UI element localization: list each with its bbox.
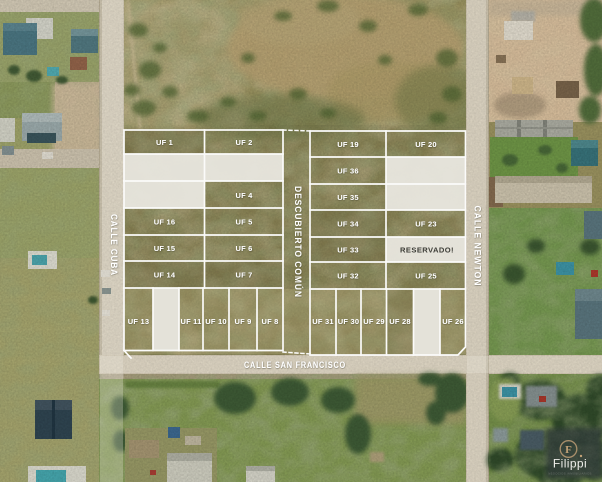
svg-text:UF 11: UF 11 xyxy=(180,317,201,326)
svg-text:UF 7: UF 7 xyxy=(235,271,252,280)
svg-text:UF 4: UF 4 xyxy=(235,191,253,200)
svg-text:UF 5: UF 5 xyxy=(235,218,252,227)
svg-text:F: F xyxy=(565,444,572,456)
svg-text:UF 16: UF 16 xyxy=(154,218,175,227)
svg-text:UF 8: UF 8 xyxy=(261,317,278,326)
svg-text:UF 34: UF 34 xyxy=(337,220,359,229)
svg-text:UF 1: UF 1 xyxy=(156,138,173,147)
svg-text:UF 31: UF 31 xyxy=(312,317,333,326)
svg-text:UF 35: UF 35 xyxy=(337,193,358,202)
svg-text:UF 10: UF 10 xyxy=(205,317,226,326)
svg-text:UF 20: UF 20 xyxy=(415,140,436,149)
svg-text:UF 26: UF 26 xyxy=(442,317,463,326)
svg-text:UF 32: UF 32 xyxy=(337,272,358,281)
svg-text:UF 13: UF 13 xyxy=(128,317,149,326)
svg-text:UF 23: UF 23 xyxy=(415,220,436,229)
svg-text:UF 33: UF 33 xyxy=(337,246,358,255)
svg-text:UF 19: UF 19 xyxy=(337,140,358,149)
svg-text:UF 36: UF 36 xyxy=(337,167,358,176)
svg-text:UF 2: UF 2 xyxy=(235,138,252,147)
svg-text:UF 25: UF 25 xyxy=(415,272,436,281)
svg-text:NEGOCIOS INMOBILIARIOS: NEGOCIOS INMOBILIARIOS xyxy=(548,472,591,476)
svg-text:UF 6: UF 6 xyxy=(235,244,252,253)
svg-text:Filippi: Filippi xyxy=(553,457,587,471)
svg-text:UF 29: UF 29 xyxy=(363,317,384,326)
svg-text:CALLE SAN FRANCISCO: CALLE SAN FRANCISCO xyxy=(244,360,346,371)
svg-text:DESCUBIERTO COMÚN: DESCUBIERTO COMÚN xyxy=(292,186,304,298)
svg-text:UF 9: UF 9 xyxy=(234,317,251,326)
svg-text:RESERVADO!: RESERVADO! xyxy=(400,246,454,255)
svg-text:UF 14: UF 14 xyxy=(154,271,176,280)
svg-text:UF 30: UF 30 xyxy=(338,317,359,326)
svg-text:UF 28: UF 28 xyxy=(389,317,410,326)
svg-text:CALLE NEWTON: CALLE NEWTON xyxy=(472,206,483,287)
svg-text:UF 15: UF 15 xyxy=(154,244,175,253)
svg-text:CALLE CUBA: CALLE CUBA xyxy=(108,214,119,276)
